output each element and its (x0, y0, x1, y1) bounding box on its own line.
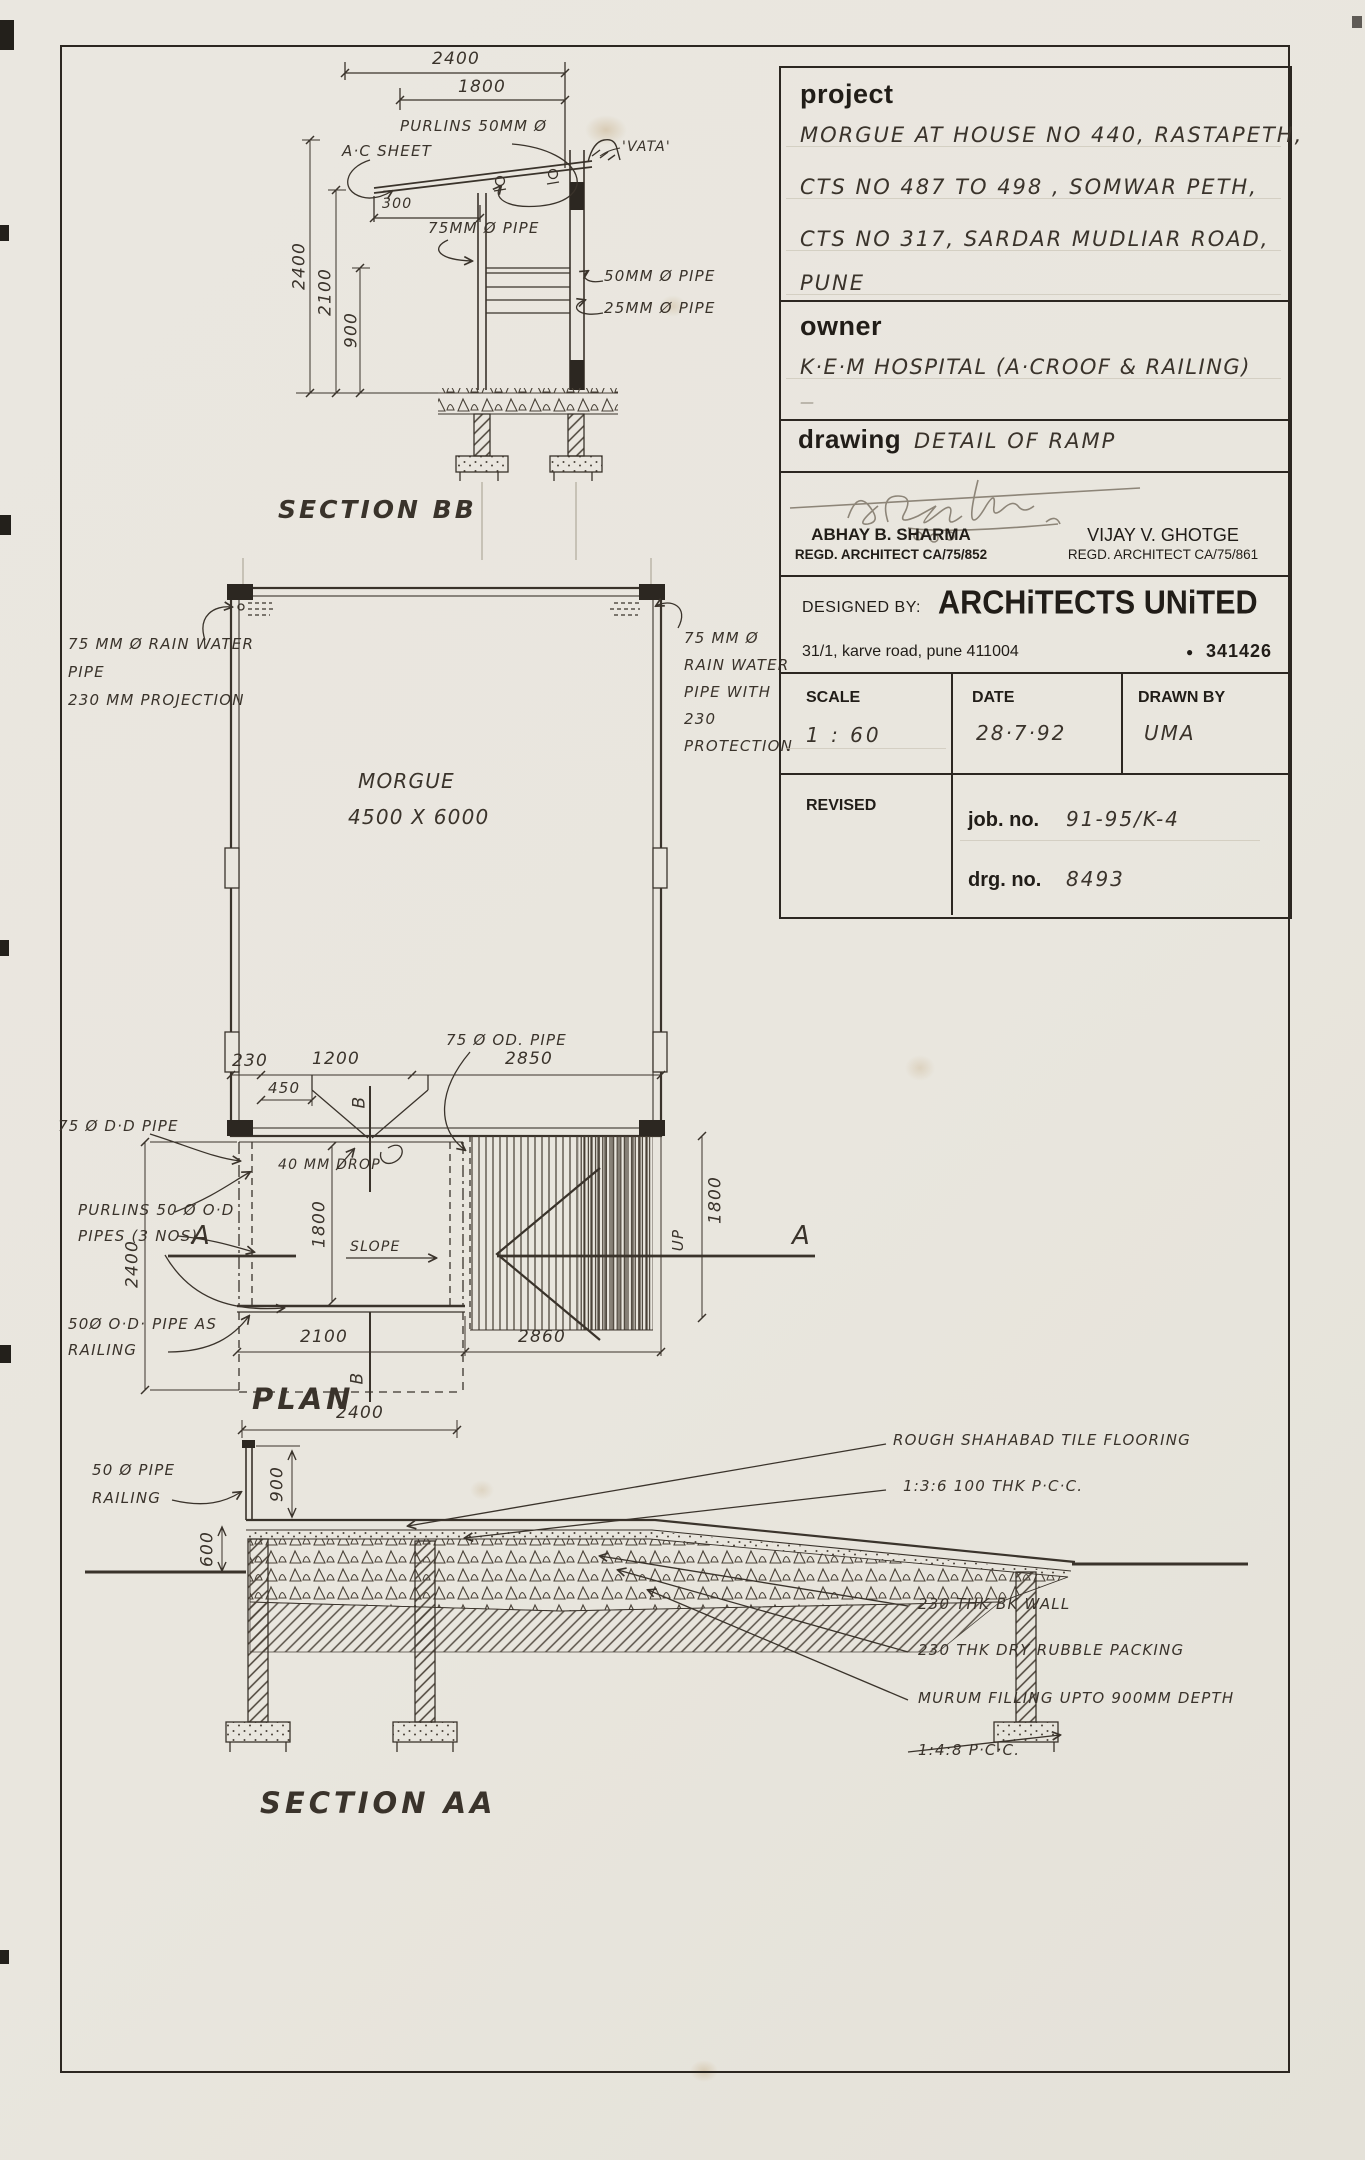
plan-section-marker-a-right: A (792, 1222, 811, 1251)
plan-leader-pipeL (150, 1134, 240, 1161)
sb-roof-sheet (374, 161, 592, 193)
revised-label: REVISED (806, 798, 876, 815)
plan-dim-2860-label: 2860 (518, 1328, 566, 1347)
plan-purlins-label-1: PURLINS 50 Ø O·D (78, 1202, 235, 1219)
sb-footing (456, 456, 508, 472)
blueprint-sheet: 2400 1800 PURLINS 50MM Ø A·C SHEET 'VATA… (0, 0, 1365, 2160)
plan-railing-label-1: 50Ø O·D· PIPE AS (68, 1316, 217, 1333)
sb-vert-dim-ticks (306, 136, 364, 397)
sb-ac-sheet-label: A·C SHEET (342, 143, 432, 160)
title-block-vdivider (951, 773, 953, 915)
project-line-3: CTS NO 317, SARDAR MUDLIAR ROAD, (800, 228, 1269, 251)
aa-annotation-148: 1:4:8 P·C·C. (918, 1742, 1020, 1759)
scale-label: SCALE (806, 690, 860, 707)
architect2-reg: REGD. ARCHITECT CA/75/861 (1048, 548, 1278, 562)
aa-annotation-pcc: 1:3:6 100 THK P·C·C. (903, 1478, 1083, 1495)
aa-railing-label-2: RAILING (92, 1490, 161, 1507)
aa-dim-600-label: 600 (199, 1531, 218, 1567)
plan-rwp-right-label-4: 230 (684, 711, 716, 728)
title-block-vdivider (951, 672, 953, 773)
plan-dim-2850-label: 2850 (505, 1050, 553, 1069)
owner-dash: — (800, 396, 815, 411)
owner-label: owner (800, 312, 882, 340)
plan-rwp-right-label-2: RAIN WATER (684, 657, 789, 674)
aa-pier (248, 1539, 268, 1722)
aa-annotation-tile: ROUGH SHAHABAD TILE FLOORING (893, 1432, 1191, 1449)
sb-vdim-2400-label: 2400 (291, 242, 310, 290)
job-no-value: 91-95/K-4 (1066, 808, 1180, 830)
plan-morgue-label: MORGUE (358, 770, 455, 792)
plan-section-marker-b-top: B (351, 1096, 370, 1109)
plan-size-label: 4500 X 6000 (348, 806, 489, 828)
firm-name: ARCHiTECTS UNiTED (938, 586, 1258, 621)
plan-wall-col (225, 848, 239, 888)
plan-dim-1200-label: 1200 (312, 1050, 360, 1069)
date-value: 28·7·92 (976, 722, 1066, 744)
sb-dim-300-label: 300 (382, 197, 412, 212)
plan-dim-1800-label: 1800 (311, 1200, 330, 1248)
plan-wall-outer (231, 588, 661, 1136)
sb-dim-1800-label: 1800 (458, 78, 506, 97)
sb-vdim-2100-label: 2100 (317, 268, 336, 316)
sb-footing-ticks (460, 472, 592, 481)
sb-rails (486, 268, 570, 313)
sb-vata-label: 'VATA' (622, 140, 671, 155)
plan-rwp-right-label-5: PROTECTION (684, 738, 793, 755)
firm-phone: 341426 (1206, 642, 1272, 661)
architect1-reg: REGD. ARCHITECT CA/75/852 (786, 548, 996, 562)
plan-rwp-left-label-1: 75 MM Ø RAIN WATER (68, 636, 254, 653)
designed-by-label: DESIGNED BY: (802, 600, 921, 617)
plan-railing-label-2: RAILING (68, 1342, 137, 1359)
plan-dim-230-label: 230 (232, 1052, 268, 1071)
aa-leader-pcc (465, 1490, 886, 1538)
plan-ramp-stripes-dense (578, 1136, 653, 1330)
plan-dim-450-label: 450 (268, 1080, 300, 1097)
plan-rwp-left-dashes (248, 603, 276, 615)
pencil-guide (786, 748, 946, 749)
plan-pipe-left-label: 75 Ø D·D PIPE (58, 1118, 179, 1135)
plan-corner-col (227, 1120, 253, 1136)
title-block-vdivider (1121, 672, 1123, 773)
aa-murum-hatch (250, 1602, 1000, 1652)
project-label: project (800, 80, 894, 108)
sb-footing (550, 456, 602, 472)
sb-pier (568, 414, 584, 456)
sb-pipe50-label: 50MM Ø PIPE (604, 268, 716, 285)
aa-leader-tile (408, 1444, 886, 1526)
plan-dim-2100-label: 2100 (300, 1328, 348, 1347)
sb-vdim-900-label: 900 (343, 312, 362, 348)
plan-dim-1800r-label: 1800 (707, 1176, 726, 1224)
drg-no-label: drg. no. (968, 870, 1041, 891)
architect2-name: VIJAY V. GHOTGE (1048, 526, 1278, 545)
title-block-divider (779, 300, 1288, 302)
plan-rwp-right-label-3: PIPE WITH (684, 684, 771, 701)
drawn-by-label: DRAWN BY (1138, 690, 1225, 707)
plan-pipe-right-label: 75 Ø OD. PIPE (446, 1032, 567, 1049)
sb-pier (474, 414, 490, 456)
sb-dim-2400-label: 2400 (432, 50, 480, 69)
aa-post-cap (242, 1440, 255, 1448)
project-line-1: MORGUE AT HOUSE NO 440, RASTAPETH, (800, 124, 1303, 147)
date-label: DATE (972, 690, 1014, 707)
firm-address: 31/1, karve road, pune 411004 (802, 644, 1019, 661)
plan-rwp-right-dashes (610, 603, 640, 615)
job-no-label: job. no. (968, 810, 1039, 831)
aa-annotation-bkwall: 230 THK BK WALL (918, 1596, 1070, 1613)
aa-footing (393, 1722, 457, 1742)
plan-slope-label: SLOPE (350, 1240, 401, 1255)
plan-leader-purl3 (165, 1255, 284, 1309)
sb-pipe75-label: 75MM Ø PIPE (428, 220, 540, 237)
sb-ground-stones (438, 388, 618, 414)
architect1-name: ABHAY B. SHARMA (796, 526, 986, 544)
aa-annotation-rubble: 230 THK DRY RUBBLE PACKING (918, 1642, 1184, 1659)
plan-rwp-left-label-3: 230 MM PROJECTION (68, 692, 245, 709)
aa-post (246, 1446, 252, 1520)
sb-purlins-label: PURLINS 50MM Ø (400, 118, 547, 135)
title-block-divider (779, 773, 1288, 775)
plan-dim-2400-label: 2400 (124, 1240, 143, 1288)
aa-dim-900-label: 900 (269, 1466, 288, 1502)
plan-rwp-left-label-2: PIPE (68, 664, 105, 681)
title-block-divider (779, 419, 1288, 421)
aa-leader-rail (172, 1492, 241, 1504)
phone-bullet-icon: ● (1186, 646, 1193, 659)
plan-wall-col (653, 1032, 667, 1072)
plan-drop-label: 40 MM DROP (278, 1158, 381, 1173)
plan-dim-2400 (145, 1142, 239, 1390)
owner-value: K·E·M HOSPITAL (A·CROOF & RAILING) (800, 356, 1251, 379)
plan-section-marker-a-left: A (192, 1222, 211, 1251)
sb-vata-detail (588, 140, 620, 162)
section-bb-title: SECTION BB (278, 496, 477, 524)
plan-dim-2400b-label: 2400 (336, 1404, 384, 1423)
plan-corner-col (639, 1120, 665, 1136)
plan-drop-loop (381, 1145, 403, 1163)
plan-rwp-right-leader (656, 603, 682, 628)
sb-pipe25-label: 25MM Ø PIPE (604, 300, 716, 317)
drawing-label: drawing (798, 426, 901, 453)
aa-railing-label-1: 50 Ø PIPE (92, 1462, 175, 1479)
drawn-by-value: UMA (1144, 722, 1196, 744)
title-block-divider (779, 672, 1288, 674)
plan-corner-col (639, 584, 665, 600)
project-line-2: CTS NO 487 TO 498 , SOMWAR PETH, (800, 176, 1258, 199)
aa-annotation-murum: MURUM FILLING UPTO 900MM DEPTH (918, 1690, 1234, 1707)
plan-up-label: UP (670, 1229, 687, 1251)
pencil-guide (960, 840, 1260, 841)
sb-leader-pipe50 (584, 271, 603, 282)
scale-value: 1 : 60 (806, 724, 882, 746)
project-line-4: PUNE (800, 272, 865, 295)
drg-no-value: 8493 (1066, 868, 1125, 890)
plan-rwp-right-label-1: 75 MM Ø (684, 630, 759, 647)
sb-leader-pipe25 (577, 300, 603, 314)
plan-corner-col (227, 584, 253, 600)
section-aa-title: SECTION AA (260, 1788, 496, 1820)
aa-footing (226, 1722, 290, 1742)
drawing-value: DETAIL OF RAMP (914, 430, 1116, 453)
aa-pier (415, 1541, 435, 1722)
plan-wall-col (653, 848, 667, 888)
sb-post-black (570, 360, 584, 390)
sb-leader-pipe75 (439, 240, 472, 261)
